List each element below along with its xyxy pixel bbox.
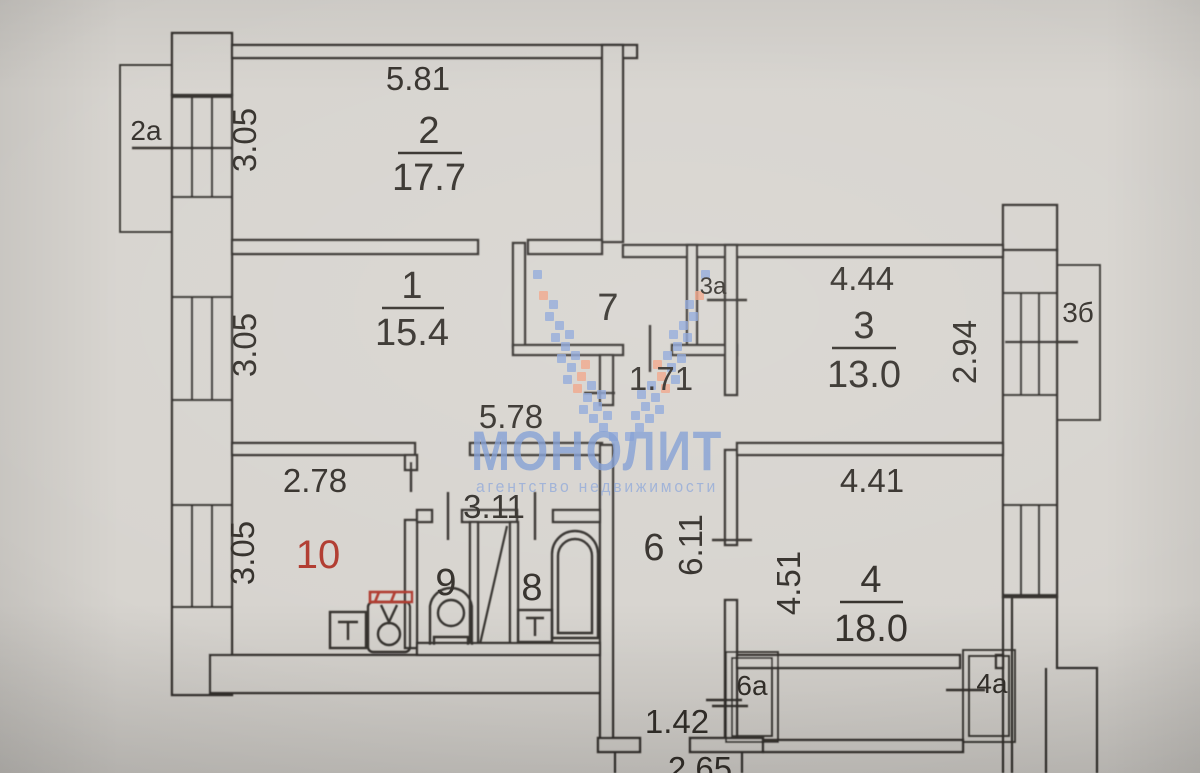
room-3-number: 3 — [853, 305, 874, 347]
dim-2-78: 2.78 — [283, 462, 347, 499]
watermark-dot — [583, 393, 592, 402]
wall-right-exterior — [1003, 250, 1057, 597]
watermark-dot — [533, 270, 542, 279]
watermark-dot — [663, 351, 672, 360]
room-8-number: 8 — [521, 567, 542, 609]
watermark-dot — [689, 312, 698, 321]
watermark-dot — [669, 330, 678, 339]
annex-4a-label: 4а — [976, 668, 1008, 699]
wall-room3-room4 — [737, 443, 1003, 455]
kitchen-fixtures — [330, 592, 412, 652]
wall-top-rooms7-3 — [623, 245, 1003, 257]
floor-plan-drawing: МОНОЛИТ агентство недвижимости 5.81 2 17… — [0, 0, 1200, 773]
room-9-number: 9 — [435, 562, 456, 604]
watermark-dot — [581, 360, 590, 369]
room-10-number: 10 — [296, 533, 341, 577]
wall-room2-right — [602, 45, 623, 242]
wall-stub-bottom-a — [598, 738, 640, 752]
room-3-area: 13.0 — [827, 354, 901, 396]
watermark-dot — [685, 300, 694, 309]
room-1-number: 1 — [401, 265, 422, 307]
watermark-dot — [597, 390, 606, 399]
wall-corridor-right-b — [725, 450, 737, 545]
floor-plan-scan: МОНОЛИТ агентство недвижимости 5.81 2 17… — [0, 0, 1200, 773]
watermark-dot — [561, 342, 570, 351]
dim-3-05-room2: 3.05 — [226, 108, 263, 172]
watermark-dot — [545, 312, 554, 321]
watermark-dot — [573, 384, 582, 393]
dim-6-11: 6.11 — [672, 514, 709, 576]
watermark-dot — [557, 354, 566, 363]
dim-4-44: 4.44 — [830, 260, 894, 297]
room-7-number: 7 — [597, 287, 618, 329]
room-1-area: 15.4 — [375, 312, 449, 354]
dim-2-94: 2.94 — [946, 320, 983, 384]
watermark-dot — [565, 330, 574, 339]
wall-san-top-a — [417, 510, 432, 522]
dim-3-11: 3.11 — [463, 488, 525, 525]
wall-bottom-right-run — [763, 740, 963, 752]
wall-bottom-exterior — [210, 655, 612, 693]
watermark-dot — [555, 321, 564, 330]
dim-5-81: 5.81 — [386, 60, 450, 97]
watermark-dot — [683, 333, 692, 342]
annex-3a-label: 3а — [700, 273, 727, 300]
room-4-area: 18.0 — [834, 608, 908, 650]
watermark-dot — [563, 375, 572, 384]
watermark-dot — [567, 363, 576, 372]
wall-room1-room7 — [513, 243, 525, 347]
watermark-dot — [679, 321, 688, 330]
wall-room4-bottom-a — [737, 655, 960, 668]
watermark-dot — [593, 402, 602, 411]
dim-5-78: 5.78 — [479, 398, 543, 435]
wall-room1-bottom-a — [232, 443, 415, 455]
dim-1-42: 1.42 — [645, 703, 709, 740]
dim-1-71: 1.71 — [629, 360, 693, 397]
wall-bottomright-step — [1003, 597, 1097, 773]
room-6-number: 6 — [643, 527, 664, 569]
room-2-number: 2 — [418, 110, 439, 152]
watermark-dot — [539, 291, 548, 300]
room-4-number: 4 — [860, 559, 881, 601]
annex-2a-label: 2а — [130, 115, 162, 146]
wall-left-exterior — [172, 95, 232, 695]
wall-topright-block — [1003, 205, 1057, 250]
dim-3-05-room10: 3.05 — [224, 521, 261, 585]
watermark-dot — [551, 333, 560, 342]
watermark-dot — [577, 372, 586, 381]
watermark-dot — [673, 342, 682, 351]
annex-6a-label: 6а — [736, 670, 768, 701]
watermark-dot — [587, 381, 596, 390]
dim-2-65: 2.65 — [668, 750, 732, 773]
room-2-area: 17.7 — [392, 157, 466, 199]
wall-san-top-c — [553, 510, 600, 522]
watermark-dot — [641, 402, 650, 411]
dim-4-51: 4.51 — [770, 551, 807, 615]
wall-room2-top — [232, 45, 637, 58]
wall-topleft-block — [172, 33, 232, 95]
shaft-diagonal — [480, 526, 507, 644]
wall-room1-room2-b — [528, 240, 602, 254]
wall-san-bottom — [417, 643, 600, 655]
watermark-dot — [579, 405, 588, 414]
dim-4-41: 4.41 — [840, 462, 904, 499]
annex-3b-label: 3б — [1062, 297, 1094, 328]
watermark-dot — [571, 351, 580, 360]
wall-corridor-right-a — [725, 245, 737, 395]
watermark-dot — [549, 300, 558, 309]
walls-and-structure — [120, 33, 1100, 773]
wall-room4-bottom-b — [996, 655, 1003, 668]
watermark-dot — [655, 405, 664, 414]
dim-3-05-room1: 3.05 — [226, 313, 263, 377]
wall-bath-left — [510, 522, 518, 648]
wall-room1-room2-a — [232, 240, 478, 254]
